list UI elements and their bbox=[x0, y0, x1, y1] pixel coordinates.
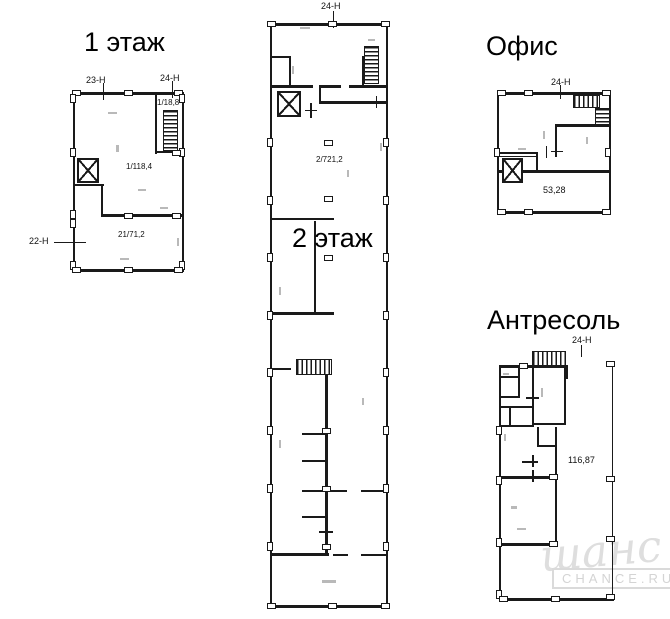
dimension-mark bbox=[541, 388, 543, 397]
column-tick bbox=[549, 541, 558, 547]
dimension-mark bbox=[503, 373, 509, 375]
axis-tick-line bbox=[581, 345, 582, 357]
column-tick bbox=[496, 476, 502, 485]
door-leaf-line bbox=[526, 397, 539, 399]
mezzanine-axis-24n-label: 24-Н bbox=[572, 335, 592, 345]
dimension-mark bbox=[517, 528, 526, 530]
column-tick bbox=[519, 363, 528, 369]
dimension-mark bbox=[504, 434, 506, 441]
column-tick bbox=[606, 594, 615, 600]
mezzanine-title: Антресоль bbox=[487, 305, 620, 336]
column-tick bbox=[496, 426, 502, 435]
wall bbox=[499, 396, 520, 398]
wall bbox=[509, 406, 511, 427]
wall bbox=[522, 461, 538, 463]
wall bbox=[566, 365, 568, 379]
stairs-hatch bbox=[532, 351, 566, 366]
room-label-area: 116,87 bbox=[568, 455, 595, 465]
wall bbox=[555, 427, 557, 545]
wall bbox=[499, 425, 534, 427]
wall bbox=[532, 365, 534, 425]
wall bbox=[499, 406, 534, 408]
door-leaf-line bbox=[532, 470, 534, 482]
column-tick bbox=[496, 538, 502, 547]
column-tick bbox=[606, 536, 615, 542]
column-tick bbox=[549, 474, 558, 480]
column-tick bbox=[606, 476, 615, 482]
column-tick bbox=[606, 361, 615, 367]
wall bbox=[537, 445, 557, 447]
dimension-mark bbox=[511, 506, 517, 509]
mezzanine-plan: Антресоль 24-Н bbox=[0, 0, 670, 619]
column-tick bbox=[551, 596, 560, 602]
door-leaf-line bbox=[532, 455, 534, 467]
column-tick bbox=[499, 596, 508, 602]
wall bbox=[537, 427, 539, 447]
wall bbox=[564, 365, 566, 425]
wall bbox=[499, 376, 520, 378]
floorplan-sheet: шанс CHANCE.RU 1 этаж 23-Н 24-Н 22-Н bbox=[0, 0, 670, 619]
wall bbox=[518, 365, 520, 398]
wall bbox=[532, 423, 566, 425]
